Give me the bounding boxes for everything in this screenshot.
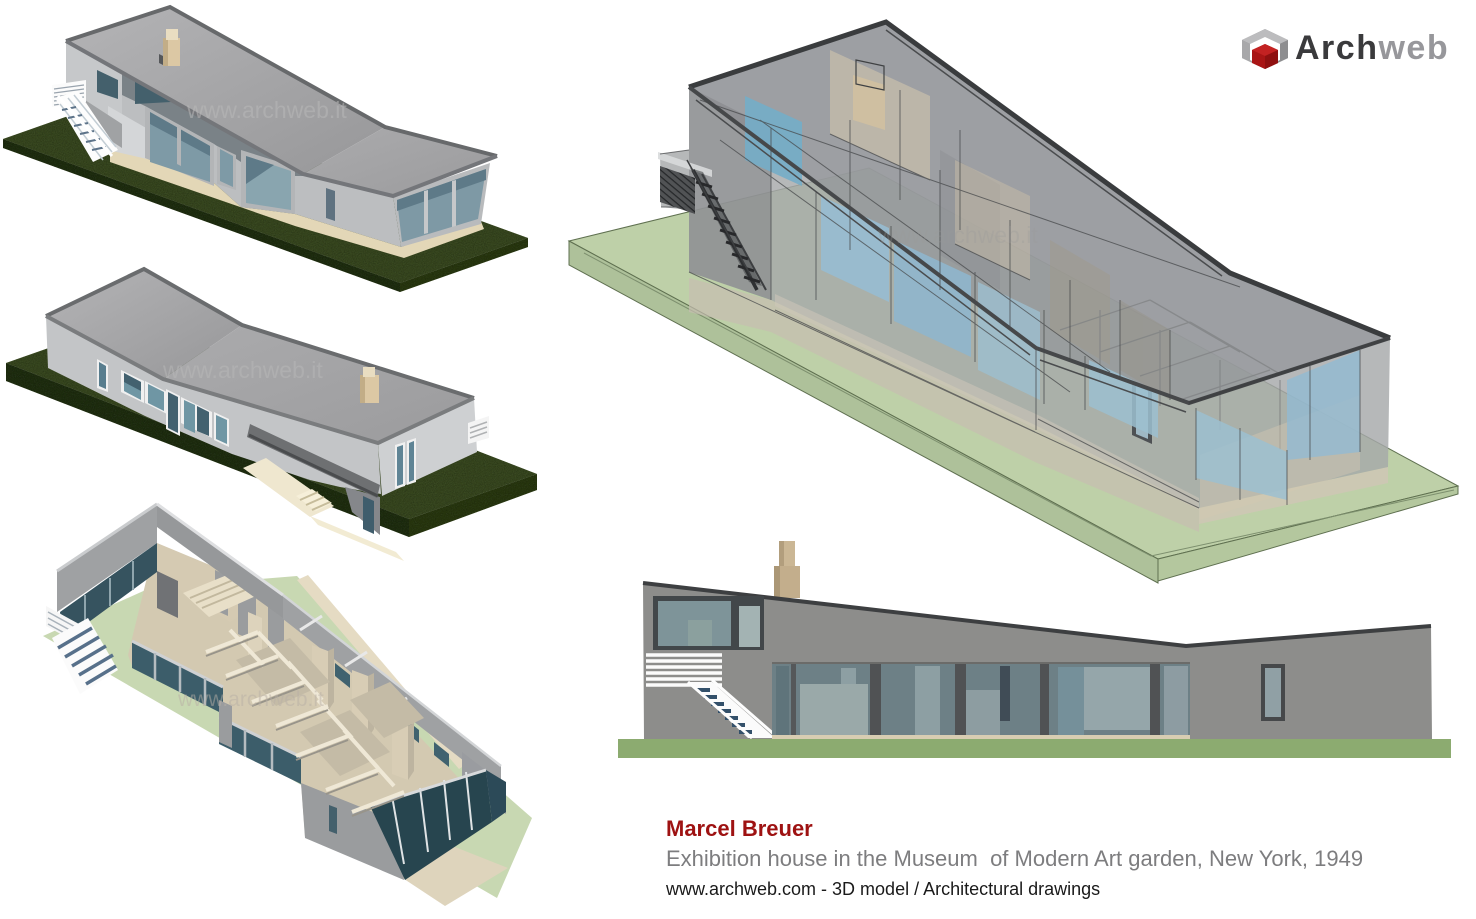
svg-text:www.archweb.com - 3D model / A: www.archweb.com - 3D model / Architectur… <box>665 879 1100 899</box>
svg-text:Marcel Breuer: Marcel Breuer <box>666 816 813 841</box>
svg-text:Archweb: Archweb <box>1295 29 1449 67</box>
svg-text:www.archweb.it: www.archweb.it <box>186 97 347 123</box>
svg-text:www.archweb.it: www.archweb.it <box>162 357 323 383</box>
svg-text:Exhibition house in the Museum: Exhibition house in the Museum of Modern… <box>666 846 1363 871</box>
svg-text:www.archweb.it: www.archweb.it <box>177 688 324 711</box>
svg-text:www.archweb.it: www.archweb.it <box>877 222 1038 248</box>
